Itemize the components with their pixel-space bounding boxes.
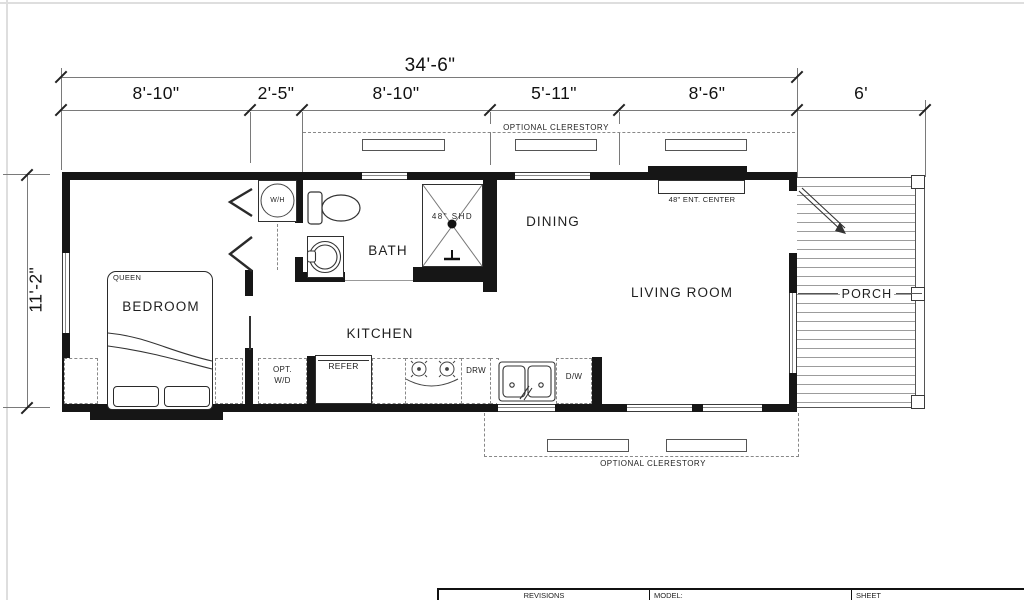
window [627,404,692,412]
shower-enclosure [422,184,483,267]
room-label-kitchen: KITCHEN [341,327,419,341]
segment-dimension: 8'-6" [667,85,747,103]
sink-counter [497,360,556,404]
window [362,172,407,180]
extension-line [61,68,62,170]
clerestory-top-label: OPTIONAL CLERESTORY [472,124,640,132]
title-block: REVISIONS MODEL: SHEET [437,588,1024,600]
dishwasher-cabinet [556,358,592,404]
wall-bedroom [245,270,253,296]
extension-line [797,68,798,180]
dishwasher-label: D/W [556,373,592,381]
porch-post [911,395,925,409]
drawer-cabinet [461,358,491,404]
wall-right [789,253,797,293]
segment-dimension: 8'-10" [356,85,436,103]
extension-line [250,112,251,163]
floorplan-canvas: 34'-6" 8'-10" 2'-5" 8'-10" 5'-11" 8'-6" … [0,0,1024,600]
window [789,293,797,373]
bath-vanity [307,236,344,278]
nightstand [64,358,98,404]
clerestory-window [547,439,629,452]
wall-ent-center-bump [648,166,747,180]
bath-door-threshold [345,280,413,281]
wall-shower [483,180,497,292]
clerestory-window [515,139,597,151]
closet-bifold-doors [230,189,252,271]
window [498,404,555,412]
wall-bedroom [245,348,253,404]
clerestory-dashed-line [303,132,795,133]
porch-post [911,175,925,189]
room-label-bedroom: BEDROOM [118,300,204,314]
dimension-line-overall [61,77,797,78]
porch-label-leader [798,293,838,294]
toilet [308,192,360,224]
porch-label-leader [896,293,922,294]
nightstand [215,358,243,404]
clerestory-dashed-line [484,456,799,457]
extension-line [619,112,620,165]
title-block-sheet: SHEET [852,590,1024,600]
extension-line [302,112,303,174]
water-heater-label: W/H [258,197,297,204]
overall-dimension: 34'-6" [367,56,493,75]
queen-label: QUEEN [113,274,153,282]
height-dimension: 11'-2" [27,255,45,325]
window [62,253,70,333]
extension-line [925,100,926,177]
window [703,404,762,412]
opt-wd-label: W/D [258,377,307,385]
room-label-bath: BATH [362,244,414,258]
title-block-model: MODEL: [650,590,852,600]
clerestory-window [665,139,747,151]
bedroom-door-leaf [249,316,251,350]
water-heater-door-dash [277,224,278,270]
wall-right [789,373,797,412]
ent-center-label: 48" ENT. CENTER [656,196,748,204]
wall-bed-bumpout [90,411,223,420]
clerestory-window [666,439,747,452]
porch-post [911,287,925,301]
clerestory-window [362,139,445,151]
room-label-dining: DINING [519,215,587,229]
room-label-living: LIVING ROOM [622,286,742,300]
segment-dimension: 2'-5" [236,85,316,103]
clerestory-bottom-label: OPTIONAL CLERESTORY [575,460,731,468]
refer-label: REFER [315,362,372,371]
wall-right [789,172,797,191]
range [405,358,462,404]
pillow [113,386,159,407]
shower-label: 48" SHD [423,213,482,221]
segment-dimension: 6' [821,85,901,103]
title-block-revisions: REVISIONS [439,590,650,600]
segment-dimension: 8'-10" [116,85,196,103]
segment-dimension: 5'-11" [514,85,594,103]
opt-wd-label: OPT. [258,366,307,374]
clerestory-dashed-line [798,413,799,457]
room-label-porch: PORCH [840,288,894,301]
wall-kitchen-end [592,357,602,412]
entertainment-center [658,180,745,194]
wall-wd-divider [307,356,315,412]
window [515,172,590,180]
clerestory-dashed-line [484,413,485,457]
kitchen-counter [372,358,406,404]
page-edge-line [0,2,1024,4]
extension-line [490,112,491,165]
drawer-label: DRW [461,367,491,375]
pillow [164,386,210,407]
page-edge-line [6,0,8,600]
